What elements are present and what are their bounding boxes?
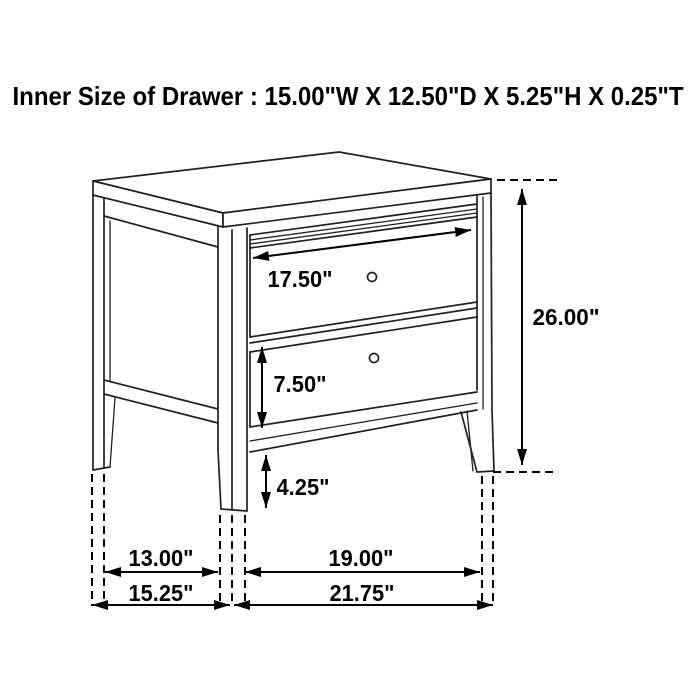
dim-overall-depth: 15.25" xyxy=(92,580,230,606)
dim-front-inner-width: 19.00" xyxy=(245,545,480,572)
side-bottom-rail-bottom xyxy=(104,394,218,423)
back-left-leg xyxy=(93,195,115,470)
dim-label-side-inner-depth: 13.00" xyxy=(129,545,194,571)
dim-label-bottom-drawer-height: 7.50" xyxy=(274,371,327,397)
dim-label-overall-width: 21.75" xyxy=(330,580,395,606)
dim-label-overall-depth: 15.25" xyxy=(129,580,194,606)
dim-label-top-drawer-width: 17.50" xyxy=(268,266,333,292)
nightstand-drawing xyxy=(93,152,494,511)
furniture-dimension-diagram: Inner Size of Drawer : 15.00"W X 12.50"D… xyxy=(0,0,700,700)
dim-label-leg-clearance: 4.25" xyxy=(277,474,330,500)
diagram-canvas: Inner Size of Drawer : 15.00"W X 12.50"D… xyxy=(0,0,700,700)
dim-leg-clearance: 4.25" xyxy=(266,455,330,508)
right-stile xyxy=(477,193,492,410)
left-side-panel xyxy=(104,216,218,423)
drawer-knob xyxy=(370,354,379,363)
dim-overall-height: 26.00" xyxy=(522,189,600,465)
side-bottom-rail-top xyxy=(104,380,218,409)
mid-rail xyxy=(250,308,477,352)
dim-side-inner-depth: 13.00" xyxy=(105,545,218,572)
dim-overall-width: 21.75" xyxy=(234,580,493,606)
front-left-leg xyxy=(218,226,247,511)
dimension-annotations: 17.50" 7.50" 4.25" 26.00" 13.00" xyxy=(92,180,600,606)
dim-label-overall-height: 26.00" xyxy=(533,304,600,330)
dim-label-front-inner-width: 19.00" xyxy=(329,545,394,571)
top-drawer-bottom-edge xyxy=(250,302,477,337)
page-title: Inner Size of Drawer : 15.00"W X 12.50"D… xyxy=(13,81,684,111)
front-right-leg xyxy=(461,410,494,472)
drawer-knob xyxy=(368,273,377,282)
